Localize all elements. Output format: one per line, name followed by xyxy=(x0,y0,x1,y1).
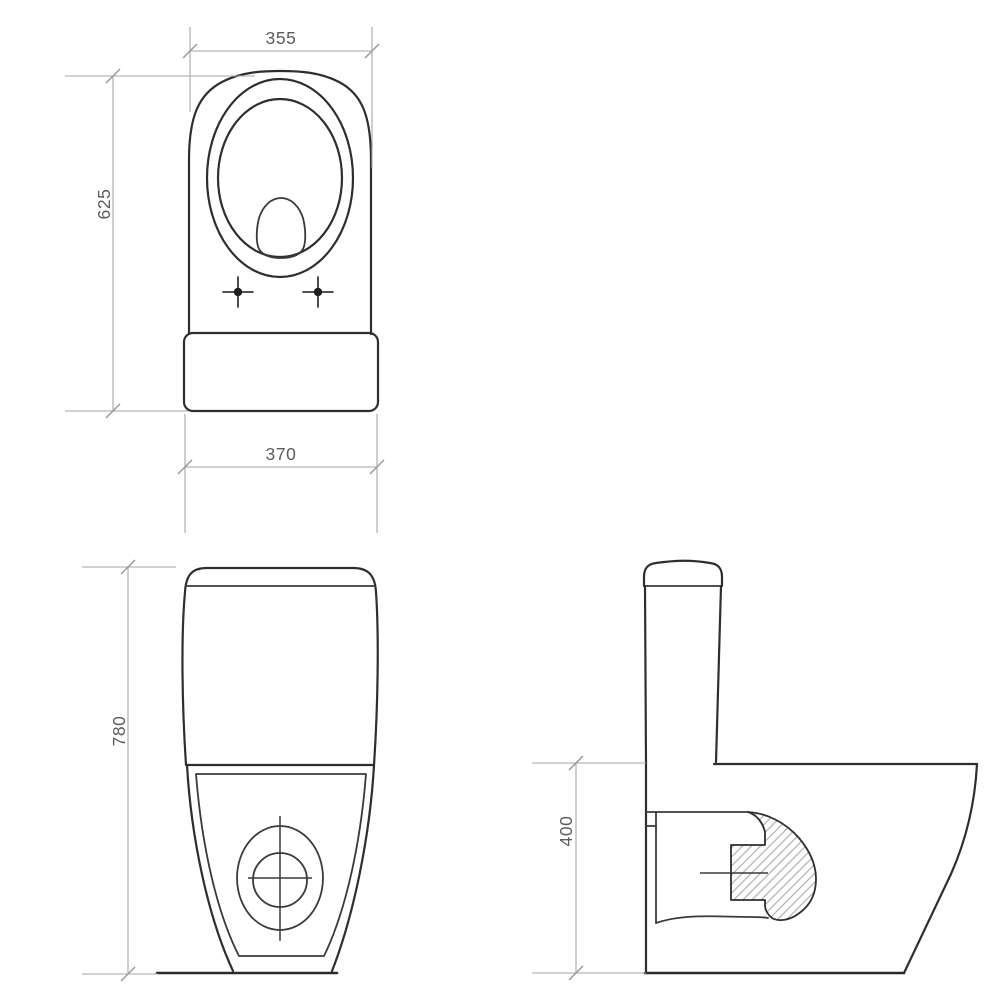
trapway-hatched-section xyxy=(731,812,816,920)
pan-top-outline xyxy=(189,71,371,334)
technical-drawing-page: 355 625 370 xyxy=(0,0,1000,1000)
cistern-top-outline xyxy=(184,333,378,411)
dimension-label: 780 xyxy=(109,716,129,747)
top-view: 355 625 370 xyxy=(65,27,384,533)
cistern-side-right-edge xyxy=(716,586,721,762)
water-spot xyxy=(257,198,306,258)
front-view: 780 xyxy=(82,560,378,981)
drawing-svg: 355 625 370 xyxy=(0,0,1000,1000)
drain-mark xyxy=(237,816,323,941)
seat-opening xyxy=(218,99,342,257)
dimension-label: 400 xyxy=(556,816,576,847)
dimension-bowl-height: 400 xyxy=(532,756,646,980)
side-view: 400 xyxy=(532,561,977,980)
dimension-label: 355 xyxy=(266,28,297,48)
dimension-cistern-width: 370 xyxy=(178,414,384,533)
bowl-front-inner-panel xyxy=(196,774,366,956)
dimension-label: 370 xyxy=(266,444,297,464)
dimension-label: 625 xyxy=(94,189,114,220)
dimension-overall-height: 780 xyxy=(82,560,176,981)
bowl-inner-bottom-curve xyxy=(656,916,768,923)
back-edge xyxy=(645,586,646,973)
cistern-front-outline xyxy=(182,568,377,765)
cistern-side-lid xyxy=(644,561,722,586)
bowl-side-front-profile xyxy=(904,764,977,973)
mounting-hole-left xyxy=(223,277,253,307)
mounting-hole-right xyxy=(303,277,333,307)
seat-ring-outer xyxy=(207,79,353,277)
